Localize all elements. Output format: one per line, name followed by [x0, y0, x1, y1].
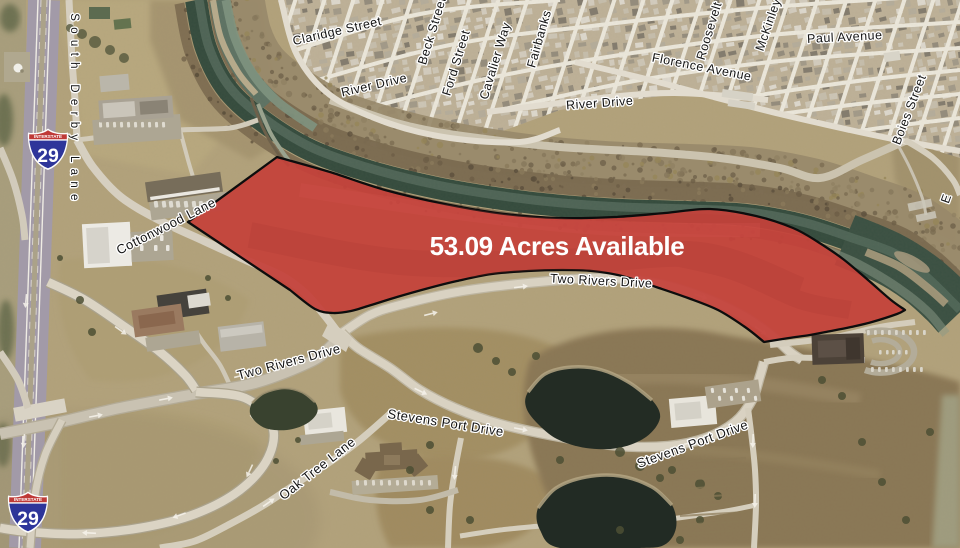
svg-text:53.09 Acres Available: 53.09 Acres Available — [430, 231, 685, 261]
svg-text:INTERSTATE: INTERSTATE — [34, 134, 62, 139]
svg-text:29: 29 — [37, 145, 59, 167]
svg-text:INTERSTATE: INTERSTATE — [14, 497, 42, 502]
svg-text:South Derby Lane: South Derby Lane — [68, 13, 80, 207]
svg-text:29: 29 — [17, 508, 39, 530]
